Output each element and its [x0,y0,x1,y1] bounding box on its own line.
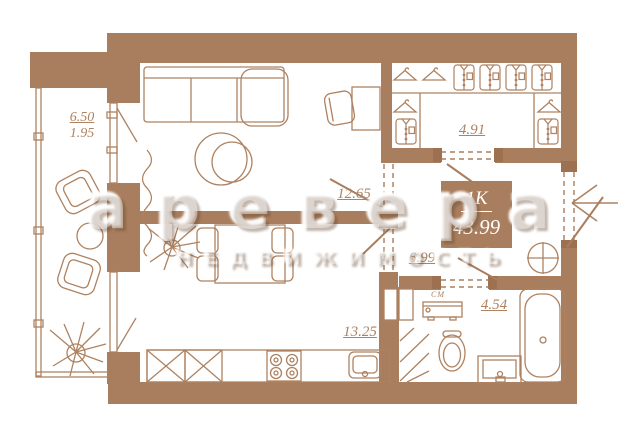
coffee-table [195,133,252,185]
furniture-layer [0,0,630,440]
circle-cross-symbol [527,242,559,274]
unit-info-card: 1К 43.99 [441,181,512,248]
desk-chair [323,90,355,126]
kitchen-area-label: 13.25 [334,324,386,341]
dining-table [215,225,285,283]
dining-chairs [197,228,293,281]
armchair [55,251,102,297]
floor-plan: 6.50 1.95 12.65 4.91 6.99 4.54 13.25 СМ … [0,0,630,440]
sofa [144,67,288,126]
bathroom-area-label: 4.54 [472,297,516,314]
shaft-hatch [400,328,429,382]
kitchen-sink [349,352,381,378]
side-table [77,223,103,249]
armchair [53,167,103,217]
curtain [143,150,152,256]
plant [50,322,106,376]
living-area-label: 12.65 [326,186,382,203]
entry-arrow [572,185,618,221]
unit-type: 1К [461,188,491,212]
wardrobe-shelving [392,93,561,148]
ventilation-ducts [384,289,413,320]
wardrobe-area-label: 4.91 [450,122,494,139]
desk [352,87,380,130]
washer-label: СМ [426,290,450,299]
unit-total-area: 43.99 [441,215,512,240]
plant [148,220,200,270]
bathtub [520,289,565,382]
bathroom-sink [478,356,521,383]
toilet [439,331,465,371]
hallway-area-label: 6.99 [398,250,446,267]
washing-machine [423,302,462,320]
balcony-area-label: 6.50 1.95 [50,110,114,142]
stove [267,351,301,381]
